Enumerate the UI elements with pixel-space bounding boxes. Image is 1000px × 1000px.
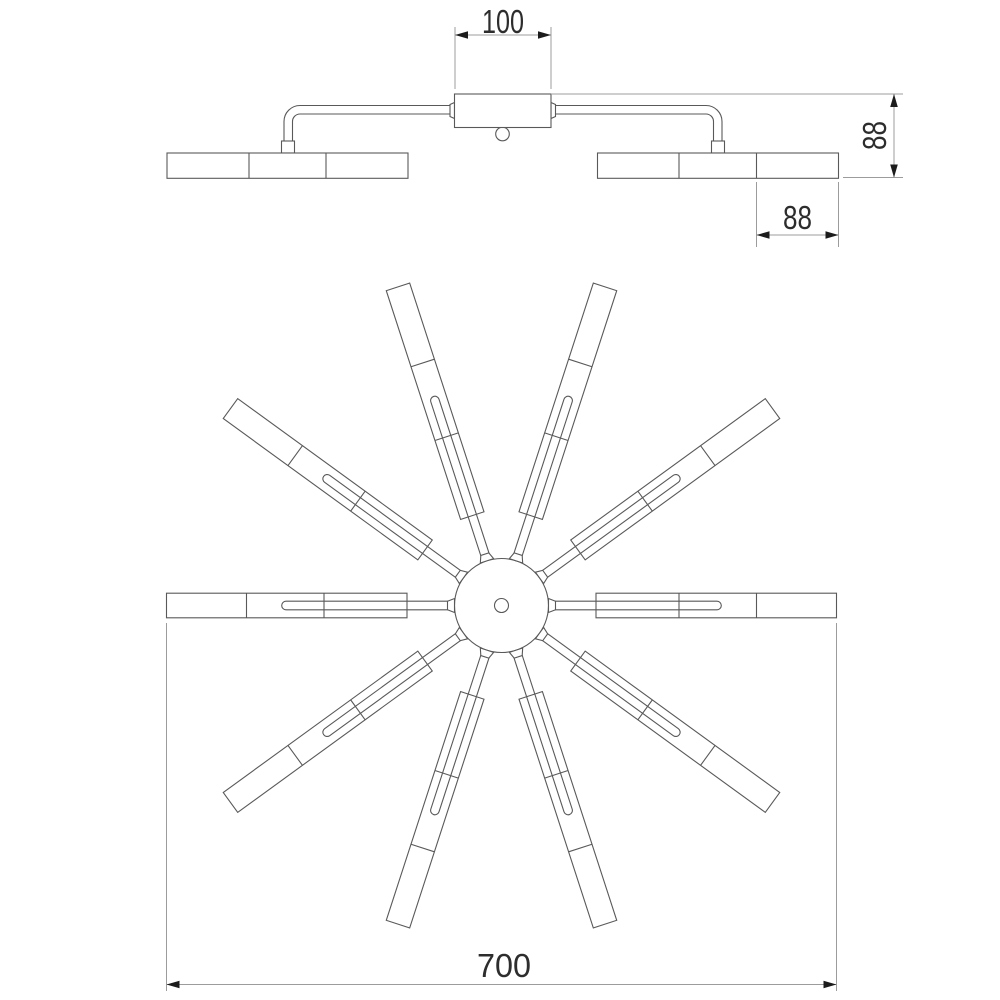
dim-label-fixture-height: 88 — [856, 121, 893, 150]
elevation-left-bar — [167, 153, 408, 178]
elevation-left-arm-tube-inner — [293, 114, 455, 141]
right-drop-fitting — [712, 141, 725, 153]
dim-bar-segment: 88 — [757, 182, 839, 247]
elevation-right-arm-tube-inner — [551, 114, 714, 141]
canopy-knob — [496, 127, 510, 141]
plan-hub — [455, 559, 549, 653]
dim-canopy-width: 100 — [455, 3, 551, 89]
plan-arm — [167, 593, 455, 618]
dim-label-canopy-width: 100 — [482, 3, 524, 40]
elevation-left-arm-tube — [284, 106, 454, 142]
plan-view — [167, 283, 837, 928]
dim-label-bar-segment: 88 — [783, 199, 812, 236]
elevation-right-bar — [598, 153, 839, 178]
dim-label-overall-diameter: 700 — [477, 947, 531, 984]
canopy-left-collar — [450, 103, 455, 119]
plan-arm — [549, 593, 837, 618]
dim-overall-diameter: 700 — [167, 623, 837, 991]
canopy-body — [455, 94, 552, 128]
canopy-right-collar — [551, 103, 556, 119]
elevation-right-arm-tube — [551, 106, 722, 142]
elevation-view — [167, 94, 839, 178]
dimension-drawing-page: 100 88 88 700 — [0, 0, 1000, 1000]
chandelier-dimension-drawing: 100 88 88 700 — [0, 0, 1000, 1000]
left-drop-fitting — [282, 141, 295, 153]
